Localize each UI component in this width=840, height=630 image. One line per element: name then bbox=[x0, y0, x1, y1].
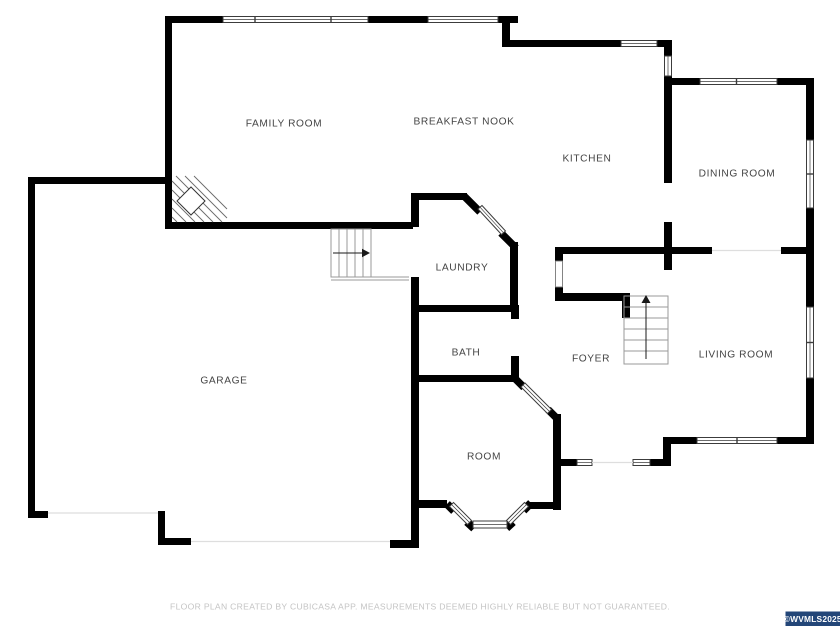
window-dining-right bbox=[807, 140, 814, 208]
opening-hall-frame bbox=[556, 261, 563, 287]
room-label-garage: GARAGE bbox=[200, 376, 247, 387]
window-family-top bbox=[223, 17, 368, 23]
window-entry-right bbox=[633, 460, 650, 466]
window-entry-left bbox=[577, 460, 592, 466]
window-living-right bbox=[807, 307, 814, 378]
stairs-foyer bbox=[624, 295, 668, 364]
window-kitchen-top bbox=[621, 41, 657, 47]
footer-disclaimer: FLOOR PLAN CREATED BY CUBICASA APP. MEAS… bbox=[170, 602, 670, 612]
floor-plan-page: FAMILY ROOM BREAKFAST NOOK KITCHEN DININ… bbox=[0, 0, 840, 630]
window-kitchen-corner bbox=[665, 56, 672, 76]
room-label-kitchen: KITCHEN bbox=[563, 154, 612, 165]
room-label-living-room: LIVING ROOM bbox=[699, 350, 774, 361]
fireplace bbox=[172, 176, 227, 222]
stair-arrow-right bbox=[362, 249, 370, 257]
watermark-badge: ©WVMLS2025 bbox=[784, 612, 840, 627]
room-label-dining-room: DINING ROOM bbox=[699, 169, 776, 180]
room-label-laundry: LAUNDRY bbox=[436, 263, 489, 274]
watermark-text: ©WVMLS2025 bbox=[784, 614, 840, 624]
window-living-bottom bbox=[697, 438, 777, 444]
room-label-breakfast-nook: BREAKFAST NOOK bbox=[413, 117, 514, 128]
room-label-family-room: FAMILY ROOM bbox=[246, 119, 322, 130]
stairs-basement bbox=[331, 229, 409, 280]
room-label-foyer: FOYER bbox=[572, 354, 610, 365]
floor-plan-canvas: FAMILY ROOM BREAKFAST NOOK KITCHEN DININ… bbox=[0, 0, 840, 630]
window-dining-top bbox=[700, 79, 777, 85]
window-nook-top bbox=[428, 17, 498, 23]
walls bbox=[28, 16, 814, 548]
room-label-room: ROOM bbox=[467, 452, 501, 463]
opening-laundry-diagonal bbox=[478, 206, 506, 235]
room-label-bath: BATH bbox=[452, 348, 481, 359]
opening-bath-diagonal bbox=[521, 383, 552, 414]
windows bbox=[223, 17, 814, 529]
bay-window bbox=[450, 503, 529, 529]
diagonal-wall-caps bbox=[447, 196, 557, 529]
